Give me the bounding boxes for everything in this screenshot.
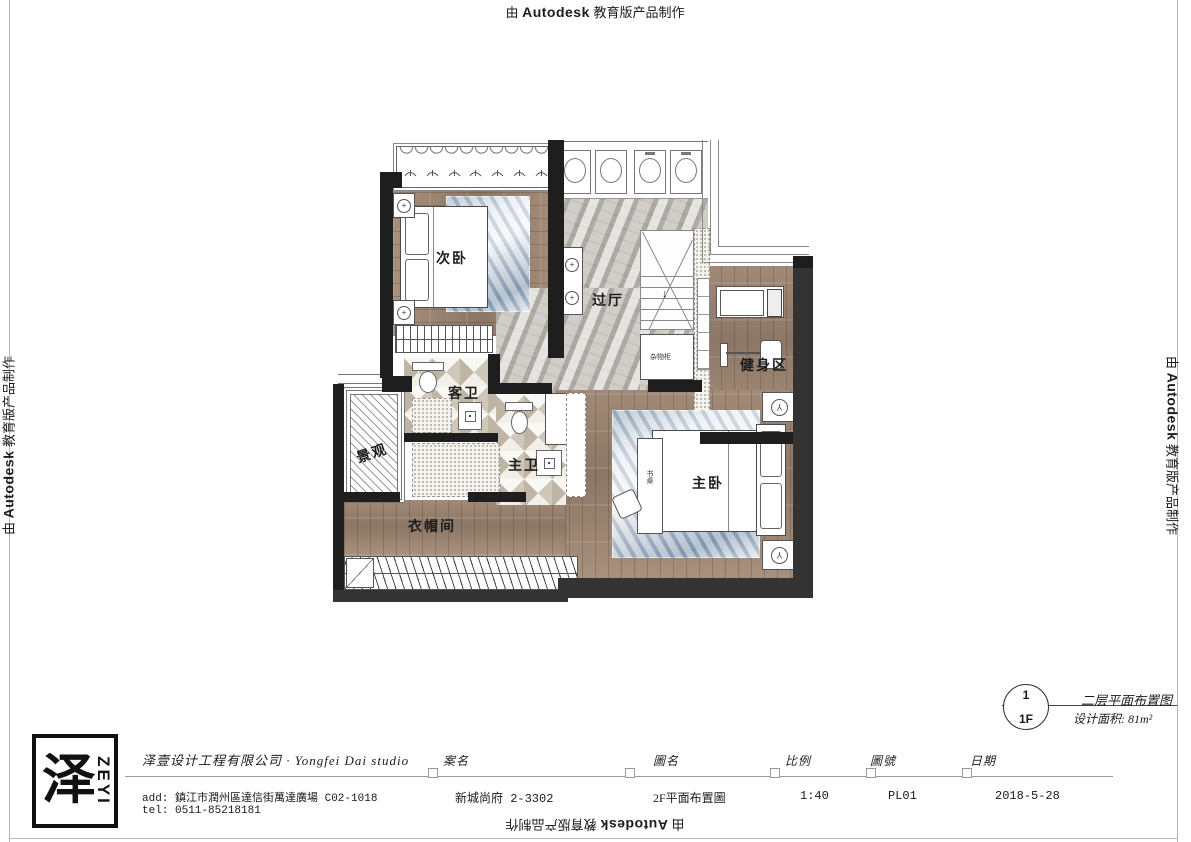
company-name: 泽壹设计工程有限公司 · Yongfei Dai studio xyxy=(142,750,409,769)
treadmill-belt xyxy=(720,290,764,316)
stair-direction-arrow: ↓ xyxy=(662,288,668,300)
outer-wall xyxy=(793,268,813,598)
ref-title: 二层平面布置图 xyxy=(1080,690,1172,709)
room-label-secondary-bedroom: 次卧 xyxy=(436,248,468,268)
plant-icon xyxy=(490,167,505,178)
ref-floor: 1F xyxy=(1004,712,1048,726)
tall-cabinet xyxy=(566,393,586,497)
curtain-wall-line xyxy=(718,140,809,247)
sink-faucet-icon xyxy=(634,150,666,194)
pillow xyxy=(760,483,782,529)
room-label-master-bedroom: 主卧 xyxy=(692,473,724,493)
column-symbol-icon: + xyxy=(565,258,579,272)
column-symbol-icon: + xyxy=(397,199,411,213)
room-label-guest-bath: 客卫 xyxy=(448,383,480,403)
wall xyxy=(404,433,498,442)
sink-icon xyxy=(595,150,627,194)
toilet-bowl xyxy=(419,371,437,393)
wall xyxy=(333,384,344,596)
field-marker xyxy=(625,768,635,778)
wall xyxy=(548,140,564,358)
desk-label: 书桌 xyxy=(645,470,655,484)
ref-bubble: 1 1F xyxy=(1003,684,1049,730)
plant-icon xyxy=(534,167,549,178)
laundry-mat xyxy=(412,443,500,497)
ceiling-fan-icon: Y xyxy=(771,547,788,564)
plant-icon xyxy=(447,167,462,178)
wall xyxy=(380,172,393,378)
wall xyxy=(382,376,412,392)
pillow xyxy=(405,259,429,301)
bay-window xyxy=(396,146,556,188)
field-label-scale: 比例 xyxy=(785,752,811,769)
toilet-bowl xyxy=(511,411,528,434)
column-box: + + xyxy=(561,247,583,315)
plant-icon xyxy=(403,167,418,178)
field-value-project: 新城尚府 2-3302 xyxy=(455,789,553,806)
ref-area: 设计面积: 81m² xyxy=(1073,710,1152,727)
wardrobe-secondary xyxy=(395,325,493,353)
shower-icon xyxy=(458,402,482,430)
column-box: + xyxy=(393,300,415,325)
logo-word: ZEYI xyxy=(93,756,113,806)
bed-line xyxy=(433,207,434,307)
wall xyxy=(496,383,552,394)
field-label-project: 案名 xyxy=(443,752,469,769)
field-marker xyxy=(428,768,438,778)
room-label-cloakroom: 衣帽间 xyxy=(408,516,456,536)
ref-number: 1 xyxy=(1004,688,1048,702)
wall xyxy=(793,256,813,268)
wall xyxy=(648,380,702,392)
bed-line xyxy=(728,431,729,531)
plant-icon xyxy=(512,167,527,178)
field-value-scale: 1:40 xyxy=(800,789,829,803)
toilet-icon xyxy=(412,362,444,371)
column-box: + xyxy=(393,193,415,218)
room-label-master-bath: 主卫 xyxy=(508,455,540,475)
sink-faucet-icon xyxy=(670,150,702,194)
field-label-drawing-name: 圖名 xyxy=(653,752,679,769)
outer-wall xyxy=(558,578,813,598)
field-value-drawing-name: 2F平面布置圖 xyxy=(653,789,726,806)
room-label-gym: 健身区 xyxy=(740,355,788,375)
shelf-column xyxy=(697,278,710,370)
company-tel: tel: 0511-85218181 xyxy=(142,805,261,817)
field-label-drawing-number: 圖號 xyxy=(870,752,896,769)
drawing-sheet: 由 Autodesk 教育版产品制作 由 Autodesk 教育版产品制作 由 … xyxy=(0,0,1191,842)
field-label-date: 日期 xyxy=(970,752,996,769)
wall xyxy=(700,432,795,444)
wall xyxy=(344,492,400,502)
bar xyxy=(726,352,760,354)
ceiling-fan-icon: Y xyxy=(771,399,788,416)
wall xyxy=(468,492,526,502)
field-marker xyxy=(962,768,972,778)
treadmill-console xyxy=(767,289,782,317)
plant-icon xyxy=(425,167,440,178)
studio-logo: 泽 ZEYI xyxy=(32,734,118,828)
shower-mat xyxy=(412,398,452,433)
column-symbol-icon: + xyxy=(397,306,411,320)
wardrobe-cloakroom xyxy=(344,556,578,590)
pillow xyxy=(405,213,429,255)
field-marker xyxy=(866,768,876,778)
treadmill xyxy=(716,286,784,318)
logo-character: 泽 xyxy=(42,738,96,824)
nightstand: Y xyxy=(762,540,794,570)
toilet-icon xyxy=(505,402,533,411)
nightstand: Y xyxy=(762,392,794,422)
storage-cabinet-label: 杂物柜 xyxy=(650,352,671,362)
company-address: add: 鎮江市潤州區達信街萬達廣場 C02-1018 xyxy=(142,789,377,805)
field-value-drawing-number: PL01 xyxy=(888,789,917,803)
outer-wall xyxy=(333,590,568,602)
field-marker xyxy=(770,768,780,778)
column-symbol-icon: + xyxy=(565,291,579,305)
plant-icon xyxy=(468,167,483,178)
plant-row xyxy=(403,159,549,185)
room-label-hallway: 过厅 xyxy=(592,290,624,310)
door-leaf xyxy=(346,558,374,588)
field-value-date: 2018-5-28 xyxy=(995,789,1060,803)
weight-bar xyxy=(720,343,728,367)
desk xyxy=(637,438,663,534)
